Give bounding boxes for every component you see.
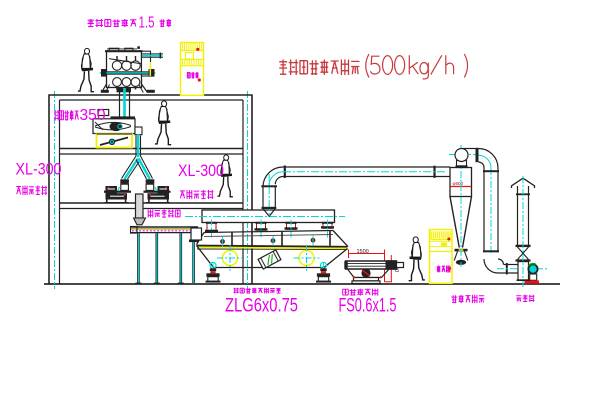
- svg-text:φ600: φ600: [453, 181, 464, 186]
- svg-text:XL-300: XL-300: [178, 161, 224, 180]
- svg-text:FS0.6x1.5: FS0.6x1.5: [339, 296, 397, 317]
- svg-text:1500: 1500: [357, 249, 369, 255]
- svg-text:350: 350: [80, 107, 106, 124]
- svg-text:XL-300: XL-300: [16, 160, 62, 179]
- svg-text:1.5: 1.5: [139, 15, 155, 32]
- svg-text:ZLG6x0.75: ZLG6x0.75: [225, 296, 298, 317]
